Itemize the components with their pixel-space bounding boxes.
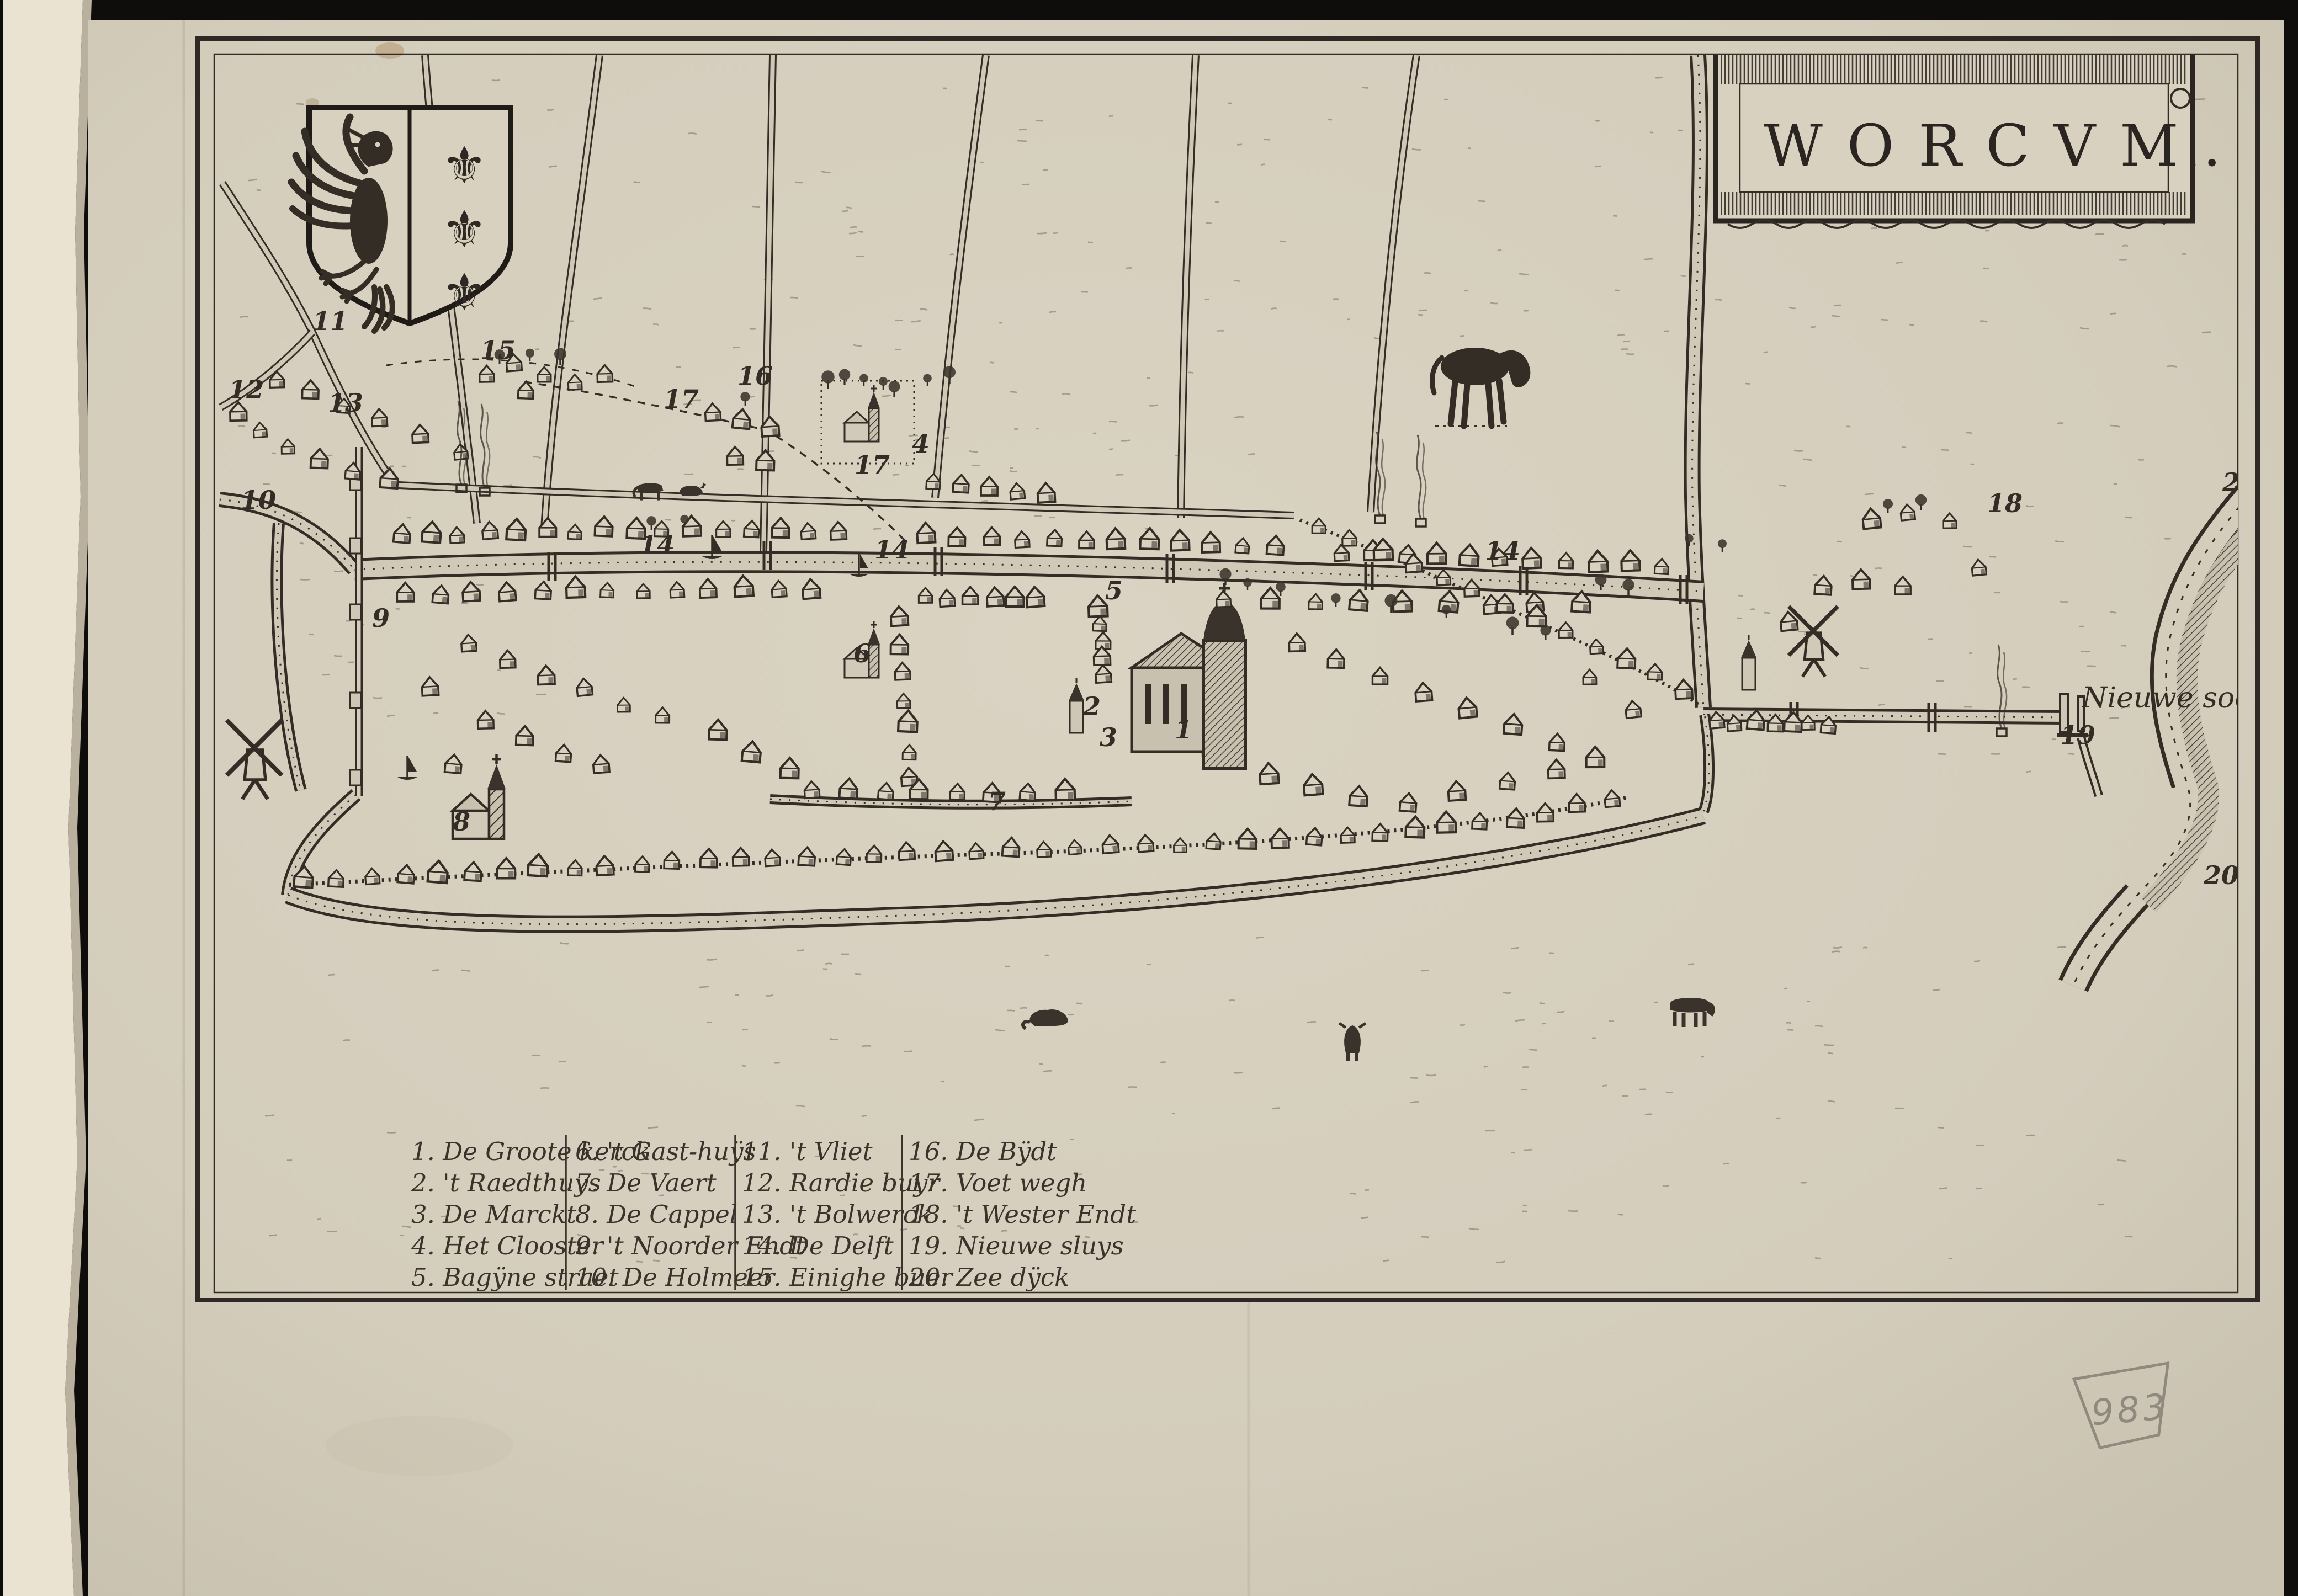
- legend-entry: 2. 't Raedthuys: [411, 1168, 601, 1198]
- map-marker-18: 18: [1987, 488, 2023, 518]
- map-marker-16: 16: [737, 361, 773, 391]
- fleur-de-lis-icon: ⚜: [442, 263, 487, 322]
- map-marker-5: 5: [1105, 576, 1123, 605]
- legend-entry: 3. De Marckt: [411, 1200, 577, 1229]
- legend-entry: 19. Nieuwe sluys: [909, 1231, 1124, 1260]
- fleur-de-lis-icon: ⚜: [442, 136, 487, 195]
- legend-entry: 18. 't Wester Endt: [909, 1200, 1137, 1229]
- map-marker-14: 14: [1485, 536, 1520, 566]
- map-title: WORCVM.: [1764, 112, 2246, 179]
- map-marker-19: 19: [2060, 720, 2095, 750]
- map-marker-17: 17: [664, 384, 699, 414]
- map-marker-11: 11: [312, 306, 348, 336]
- map-marker-10: 10: [241, 485, 276, 515]
- fleur-de-lis-icon: ⚜: [442, 200, 487, 259]
- map-marker-6: 6: [853, 639, 871, 668]
- legend-entry: 6. 't Gast-huÿs: [575, 1137, 756, 1166]
- map-marker-7: 7: [988, 786, 1006, 816]
- map-marker-3: 3: [1100, 722, 1117, 752]
- scanned-map-sheet: ⚜ ⚜ ⚜ WORCVM. Nieuwe sool 12345678910111…: [0, 0, 2298, 1596]
- map-marker-17: 17: [855, 450, 890, 480]
- map-marker-13: 13: [328, 388, 363, 418]
- place-label-nieuwe-sool: Nieuwe sool: [2081, 682, 2261, 715]
- map-marker-15: 15: [480, 335, 516, 365]
- inventory-number: 983: [2090, 1386, 2170, 1434]
- map-marker-1: 1: [1175, 715, 1192, 744]
- legend-entry: 13. 't Bolwerck: [742, 1200, 932, 1229]
- map-marker-9: 9: [372, 603, 390, 633]
- legend-entry: 17. Voet wegh: [909, 1168, 1087, 1198]
- map-marker-20: 20: [2203, 860, 2239, 890]
- legend-entry: 8. De Cappel: [575, 1200, 737, 1229]
- legend-entry: 11. 't Vliet: [742, 1137, 873, 1166]
- map-marker-2: 2: [1082, 691, 1101, 721]
- map-marker-14: 14: [874, 535, 910, 565]
- legend-entry: 7. De Vaert: [575, 1168, 717, 1198]
- map-marker-12: 12: [229, 375, 264, 405]
- map-marker-8: 8: [452, 807, 470, 837]
- map-marker-4: 4: [912, 429, 930, 459]
- legend-entry: 16. De Bÿdt: [909, 1137, 1057, 1166]
- title-cartouche: WORCVM.: [1716, 50, 2246, 228]
- legend-entry: 14. De Delft: [742, 1231, 894, 1260]
- legend: 1. De Groote kerck2. 't Raedthuys3. De M…: [411, 1135, 1137, 1292]
- map-engraving: ⚜ ⚜ ⚜ WORCVM. Nieuwe sool 12345678910111…: [0, 0, 2298, 1596]
- legend-entry: 20. Zee dÿck: [908, 1263, 1069, 1292]
- map-marker-14: 14: [639, 530, 675, 560]
